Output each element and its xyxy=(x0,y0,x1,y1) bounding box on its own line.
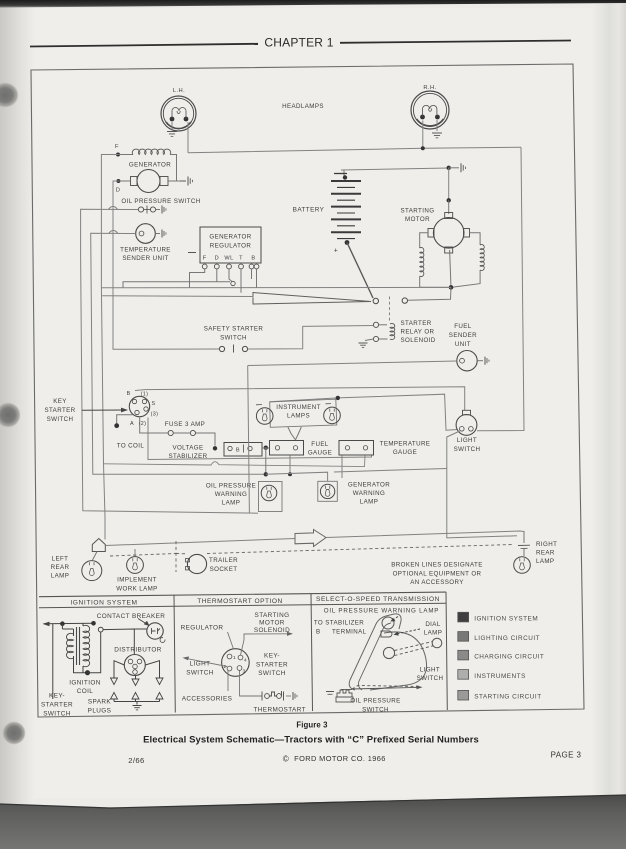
svg-text:SWITCH: SWITCH xyxy=(47,416,74,423)
svg-text:A: A xyxy=(130,421,134,427)
svg-text:4: 4 xyxy=(244,658,247,664)
svg-text:INSTRUMENT: INSTRUMENT xyxy=(276,404,321,411)
svg-text:COIL: COIL xyxy=(77,688,94,695)
svg-text:GENERATOR: GENERATOR xyxy=(348,482,390,489)
svg-text:OIL PRESSURE WARNING LAMP: OIL PRESSURE WARNING LAMP xyxy=(324,608,439,615)
svg-text:WL: WL xyxy=(224,256,233,262)
svg-text:STARTING: STARTING xyxy=(401,208,435,215)
svg-text:3: 3 xyxy=(242,669,245,675)
svg-text:KEY-: KEY- xyxy=(264,653,280,660)
svg-text:STABILIZER: STABILIZER xyxy=(169,453,208,460)
svg-text:1: 1 xyxy=(233,655,236,661)
svg-text:UNIT: UNIT xyxy=(455,341,471,348)
svg-text:CHARGING CIRCUIT: CHARGING CIRCUIT xyxy=(474,654,544,661)
svg-text:+: + xyxy=(334,248,339,255)
svg-text:B: B xyxy=(251,256,255,262)
svg-text:SWITCH: SWITCH xyxy=(186,670,214,677)
svg-text:OIL PRESSURE: OIL PRESSURE xyxy=(350,698,400,705)
svg-text:FUEL: FUEL xyxy=(454,323,472,330)
svg-text:B: B xyxy=(127,391,131,397)
svg-text:SPARK: SPARK xyxy=(88,699,112,706)
svg-text:IGNITION SYSTEM: IGNITION SYSTEM xyxy=(70,600,137,607)
svg-text:PAGE 3: PAGE 3 xyxy=(551,751,582,760)
svg-text:FORD MOTOR CO. 1966: FORD MOTOR CO. 1966 xyxy=(294,754,386,763)
svg-text:INSTRUMENTS: INSTRUMENTS xyxy=(474,673,526,680)
svg-text:TEMPERATURE: TEMPERATURE xyxy=(380,441,431,448)
svg-text:LAMP: LAMP xyxy=(424,630,442,637)
svg-text:THERMOSTART OPTION: THERMOSTART OPTION xyxy=(197,598,283,605)
svg-text:D: D xyxy=(116,188,121,194)
svg-text:MOTOR: MOTOR xyxy=(259,620,285,627)
svg-text:RELAY OR: RELAY OR xyxy=(401,329,435,336)
svg-text:STARTER: STARTER xyxy=(44,407,75,414)
svg-text:STARTING CIRCUIT: STARTING CIRCUIT xyxy=(474,694,541,701)
svg-text:PLUGS: PLUGS xyxy=(88,708,112,715)
svg-text:B: B xyxy=(316,629,321,636)
svg-text:LIGHT: LIGHT xyxy=(190,661,211,668)
svg-text:BATTERY: BATTERY xyxy=(293,207,325,214)
svg-text:STARTING: STARTING xyxy=(255,612,290,619)
svg-text:D: D xyxy=(215,256,219,262)
svg-text:TO COIL: TO COIL xyxy=(117,443,145,450)
svg-text:WARNING: WARNING xyxy=(215,491,247,498)
svg-text:STARTER: STARTER xyxy=(256,662,288,669)
svg-text:2: 2 xyxy=(223,664,226,670)
svg-text:SWITCH: SWITCH xyxy=(417,675,444,682)
svg-text:SWITCH: SWITCH xyxy=(258,670,286,677)
svg-text:IGNITION: IGNITION xyxy=(69,680,101,687)
svg-text:TO STABILIZER: TO STABILIZER xyxy=(314,620,364,627)
svg-text:F: F xyxy=(203,256,207,262)
svg-text:THERMOSTART: THERMOSTART xyxy=(253,707,305,714)
svg-text:OPTIONAL EQUIPMENT OR: OPTIONAL EQUIPMENT OR xyxy=(393,571,482,578)
svg-text:HEADLAMPS: HEADLAMPS xyxy=(282,103,324,110)
svg-text:KEY-: KEY- xyxy=(49,693,65,700)
svg-text:DISTRIBUTOR: DISTRIBUTOR xyxy=(114,647,162,654)
svg-text:SAFETY STARTER: SAFETY STARTER xyxy=(204,326,264,333)
svg-text:B: B xyxy=(236,448,240,454)
svg-text:LAMP: LAMP xyxy=(51,573,69,580)
svg-text:SWITCH: SWITCH xyxy=(43,711,71,718)
svg-text:GENERATOR: GENERATOR xyxy=(129,162,171,169)
svg-text:Electrical System Schematic—Tr: Electrical System Schematic—Tractors wit… xyxy=(143,735,479,746)
svg-text:SENDER UNIT: SENDER UNIT xyxy=(122,255,168,262)
svg-text:F: F xyxy=(115,144,119,150)
svg-text:FUSE 3 AMP: FUSE 3 AMP xyxy=(165,421,205,428)
svg-text:REAR: REAR xyxy=(536,550,555,557)
svg-text:LEFT: LEFT xyxy=(52,556,69,563)
svg-text:SOCKET: SOCKET xyxy=(210,566,238,573)
svg-text:SENDER: SENDER xyxy=(449,332,477,339)
svg-text:©: © xyxy=(283,755,289,764)
svg-text:T: T xyxy=(239,256,243,262)
svg-text:L.H.: L.H. xyxy=(173,88,185,94)
svg-text:GAUGE: GAUGE xyxy=(308,450,332,457)
svg-text:MOTOR: MOTOR xyxy=(405,216,430,223)
svg-text:FUEL: FUEL xyxy=(311,441,329,448)
svg-text:2/66: 2/66 xyxy=(128,756,144,765)
svg-text:TEMPERATURE: TEMPERATURE xyxy=(120,247,171,254)
svg-text:R.H.: R.H. xyxy=(423,85,436,91)
svg-text:OIL PRESSURE SWITCH: OIL PRESSURE SWITCH xyxy=(121,198,200,205)
svg-text:BROKEN LINES DESIGNATE: BROKEN LINES DESIGNATE xyxy=(391,562,483,569)
svg-text:ACCESSORIES: ACCESSORIES xyxy=(182,696,233,703)
svg-text:SWITCH: SWITCH xyxy=(362,707,389,714)
svg-text:(1): (1) xyxy=(141,391,149,397)
svg-text:SOLENOID: SOLENOID xyxy=(254,627,290,634)
svg-text:VOLTAGE: VOLTAGE xyxy=(172,445,203,452)
svg-text:(3): (3) xyxy=(151,411,159,417)
svg-text:RIGHT: RIGHT xyxy=(536,541,557,548)
svg-text:IGNITION SYSTEM: IGNITION SYSTEM xyxy=(474,616,538,623)
svg-text:AN ACCESSORY: AN ACCESSORY xyxy=(410,579,464,586)
svg-text:LIGHT: LIGHT xyxy=(457,437,477,444)
svg-text:GENERATOR: GENERATOR xyxy=(209,234,251,241)
svg-text:STARTER: STARTER xyxy=(401,320,432,327)
svg-text:WORK LAMP: WORK LAMP xyxy=(116,586,157,593)
svg-text:LAMP: LAMP xyxy=(222,500,240,507)
svg-text:CHAPTER 1: CHAPTER 1 xyxy=(264,36,333,50)
svg-text:LIGHTING CIRCUIT: LIGHTING CIRCUIT xyxy=(474,635,540,642)
svg-text:CONTACT BREAKER: CONTACT BREAKER xyxy=(97,613,166,620)
svg-text:LIGHT: LIGHT xyxy=(420,667,440,674)
svg-text:KEY: KEY xyxy=(53,398,67,405)
svg-text:GAUGE: GAUGE xyxy=(393,449,417,456)
svg-text:S: S xyxy=(152,401,156,407)
svg-text:SELECT-O-SPEED TRANSMISSION: SELECT-O-SPEED TRANSMISSION xyxy=(316,596,440,603)
svg-text:WARNING: WARNING xyxy=(353,490,385,497)
svg-text:REGULATOR: REGULATOR xyxy=(181,625,224,632)
svg-text:DIAL: DIAL xyxy=(425,621,441,628)
svg-text:REAR: REAR xyxy=(51,564,70,571)
svg-text:REGULATOR: REGULATOR xyxy=(210,243,252,250)
svg-text:TERMINAL: TERMINAL xyxy=(332,629,367,636)
svg-text:IMPLEMENT: IMPLEMENT xyxy=(117,577,157,584)
svg-text:SOLENOID: SOLENOID xyxy=(401,337,436,344)
svg-text:LAMP: LAMP xyxy=(360,499,378,506)
svg-text:SWITCH: SWITCH xyxy=(220,335,247,342)
svg-text:LAMPS: LAMPS xyxy=(287,413,310,420)
svg-text:Figure 3: Figure 3 xyxy=(296,721,328,730)
svg-text:STARTER: STARTER xyxy=(41,702,73,709)
svg-text:TRAILER: TRAILER xyxy=(209,557,238,564)
svg-text:SWITCH: SWITCH xyxy=(454,446,481,453)
svg-text:LAMP: LAMP xyxy=(536,558,554,565)
